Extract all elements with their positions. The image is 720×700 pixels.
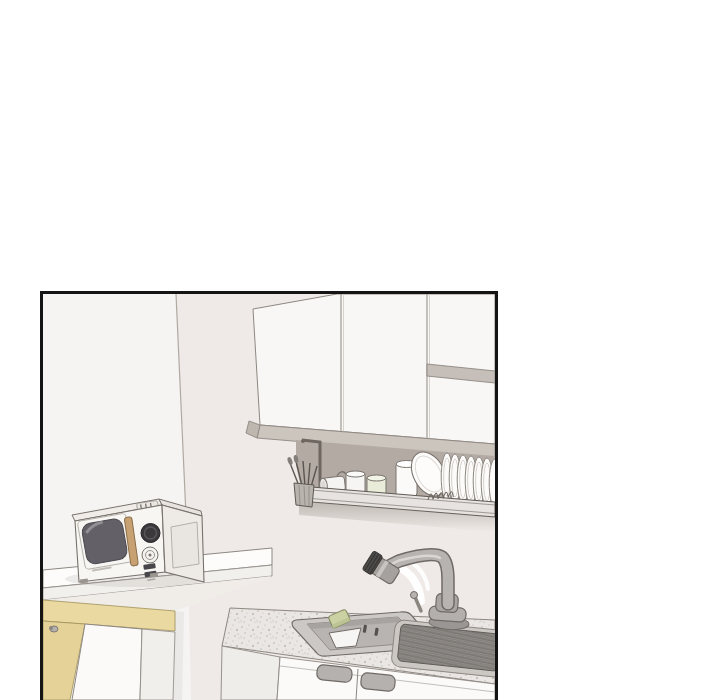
comic-panel [40, 291, 498, 700]
door-handle [316, 664, 352, 683]
microwave-side-panel [171, 522, 199, 568]
microwave-window [81, 518, 128, 565]
utensil-basket [294, 483, 314, 507]
cabinet-side-return [140, 629, 175, 700]
rack-bracket-mount [301, 439, 305, 443]
hinge-knob-cap [49, 626, 53, 630]
door-handle [360, 672, 395, 691]
microwave-dial-dot [149, 554, 152, 557]
upper-cabinets [246, 294, 495, 458]
faucet-lever-knob [411, 592, 418, 599]
kitchen-scene-illustration [43, 294, 495, 700]
lower-cabinet [43, 600, 184, 700]
webtoon-page [0, 0, 720, 700]
microwave [65, 499, 205, 587]
